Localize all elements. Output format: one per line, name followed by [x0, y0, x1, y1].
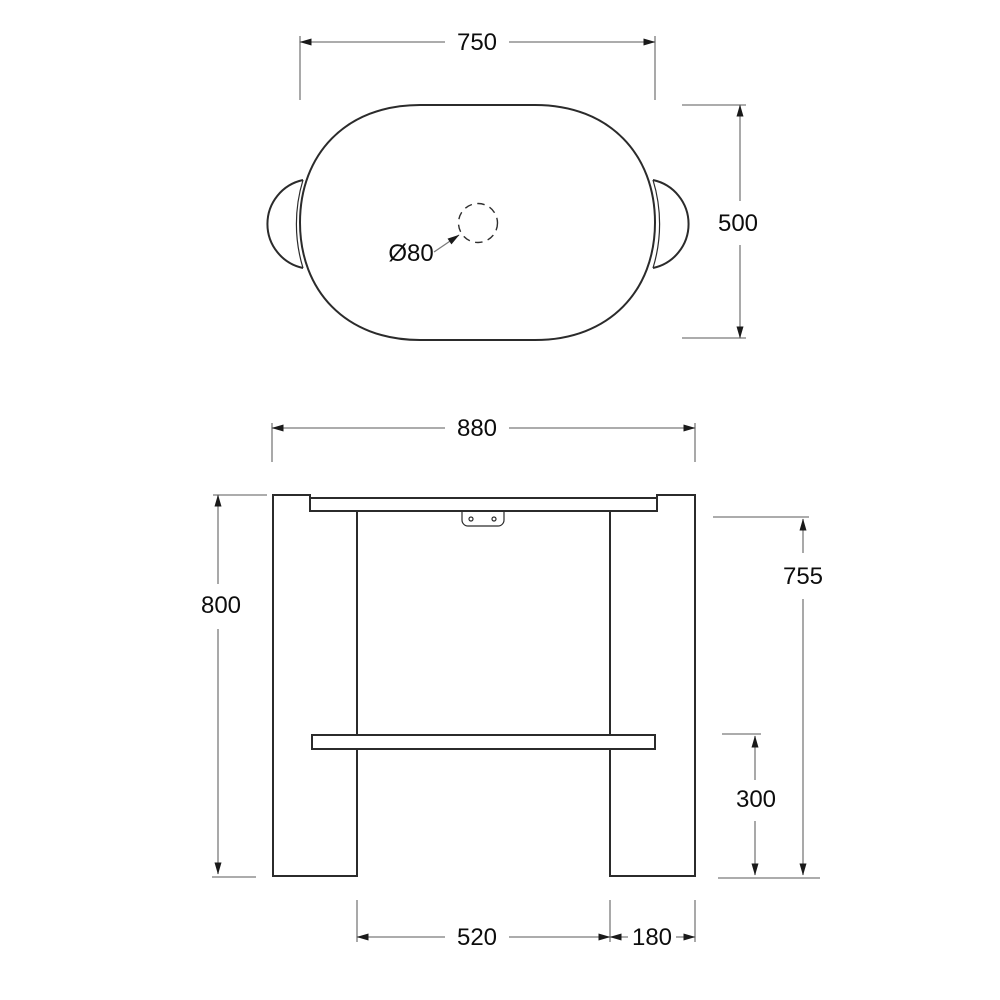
mounting-bracket — [462, 511, 504, 526]
dimension-label-leg-width: 180 — [632, 924, 672, 951]
left-leg — [273, 495, 357, 876]
dimension-label-under-top-height: 755 — [783, 563, 823, 590]
technical-drawing: Ø80 750 500 — [0, 0, 1000, 1000]
top-view: Ø80 750 500 — [267, 29, 758, 340]
dimension-top-width: 750 — [300, 29, 655, 100]
top-outline — [300, 105, 655, 340]
dimension-front-height: 800 — [201, 495, 267, 877]
left-handle-outer-arc — [267, 180, 303, 268]
front-view: 880 800 755 300 — [201, 415, 823, 951]
bracket-hole-left — [469, 517, 473, 521]
dimension-label-top-width: 750 — [457, 29, 497, 56]
dimension-top-depth: 500 — [682, 105, 758, 338]
dimension-leg-span: 520 — [357, 900, 610, 951]
dimension-label-leg-span: 520 — [457, 924, 497, 951]
right-handle — [653, 180, 689, 268]
dimension-label-top-depth: 500 — [718, 210, 758, 237]
dimension-label-front-height: 800 — [201, 592, 241, 619]
dimension-leg-width: 180 — [610, 900, 695, 951]
dimension-front-width: 880 — [272, 415, 695, 462]
left-handle — [267, 180, 303, 268]
dimension-label-shelf-height: 300 — [736, 786, 776, 813]
apron — [310, 498, 657, 511]
bracket-outline — [462, 511, 504, 526]
right-leg — [610, 495, 695, 876]
shelf — [312, 735, 655, 749]
drawing-canvas: Ø80 750 500 — [0, 0, 1000, 1000]
dimension-shelf-height: 300 — [722, 734, 776, 875]
right-handle-outer-arc — [653, 180, 689, 268]
dimension-label-hole: Ø80 — [388, 240, 433, 267]
bracket-hole-right — [492, 517, 496, 521]
dimension-under-top-height: 755 — [713, 517, 823, 875]
dimension-label-front-width: 880 — [457, 415, 497, 442]
